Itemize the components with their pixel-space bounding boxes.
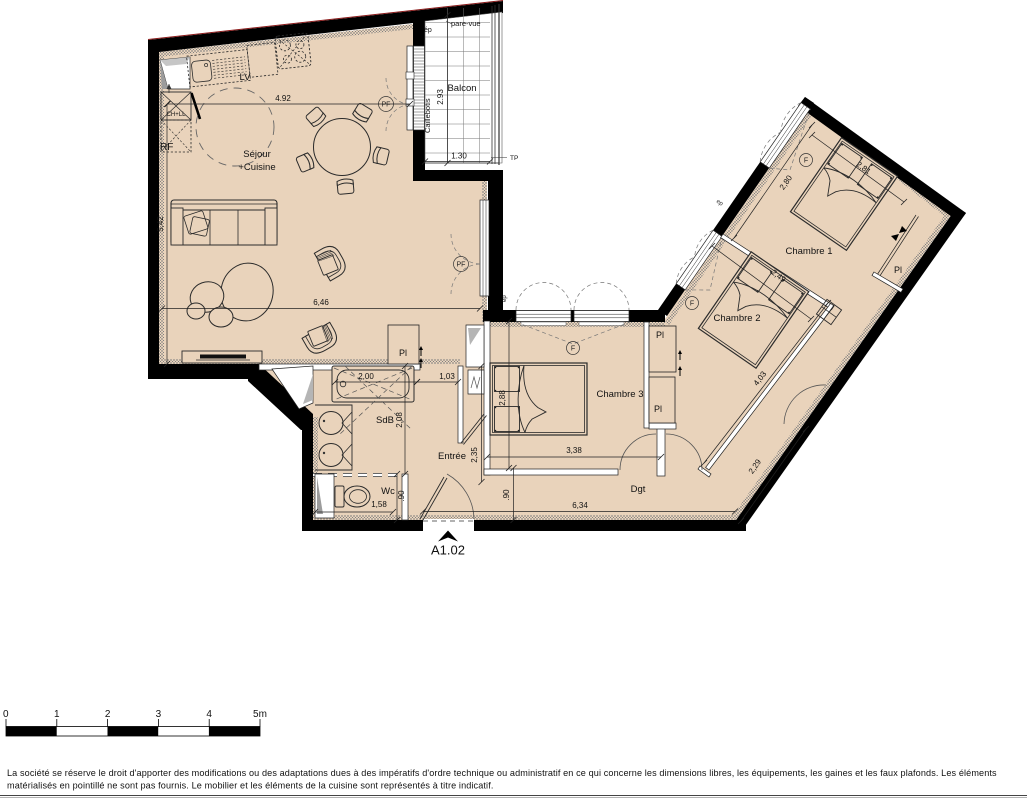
svg-text:3,38: 3,38 (566, 446, 582, 455)
svg-text:PF: PF (382, 102, 391, 109)
svg-text:PF: PF (457, 262, 466, 269)
svg-text:+Cuisine: +Cuisine (238, 162, 275, 173)
svg-text:.90: .90 (397, 490, 406, 502)
svg-text:2,08: 2,08 (395, 412, 404, 428)
svg-text:Entrée: Entrée (438, 451, 466, 462)
svg-text:2,88: 2,88 (498, 390, 507, 406)
svg-text:F: F (804, 158, 808, 165)
svg-text:ep: ep (502, 295, 508, 302)
svg-text:Wc: Wc (381, 486, 395, 497)
svg-text:2,00: 2,00 (358, 372, 374, 381)
svg-text:F: F (690, 301, 694, 308)
svg-text:SdB: SdB (376, 415, 394, 426)
svg-text:Dgt: Dgt (631, 484, 646, 495)
svg-text:CH+LL: CH+LL (167, 112, 187, 118)
svg-text:LV: LV (240, 72, 252, 83)
svg-text:Chambre 3: Chambre 3 (597, 389, 644, 400)
svg-text:La société se réserve le droit: La société se réserve le droit d'apporte… (7, 768, 997, 778)
svg-text:3: 3 (156, 709, 162, 720)
svg-text:ép: ép (424, 27, 432, 34)
svg-text:Balcon: Balcon (447, 83, 476, 94)
svg-text:F: F (571, 346, 575, 353)
svg-text:1,58: 1,58 (371, 500, 387, 509)
svg-text:matérialisés en pointillé ne s: matérialisés en pointillé ne sont pas fo… (7, 781, 494, 791)
svg-text:4: 4 (206, 709, 212, 720)
svg-text:Séjour: Séjour (243, 149, 270, 160)
svg-text:2.93: 2.93 (436, 89, 445, 105)
svg-text:4.92: 4.92 (275, 94, 291, 103)
svg-text:Pl: Pl (654, 404, 662, 414)
svg-text:6,46: 6,46 (313, 298, 329, 307)
svg-text:1: 1 (54, 709, 60, 720)
svg-text:pare-vue: pare-vue (451, 19, 481, 28)
svg-text:2,35: 2,35 (470, 447, 479, 463)
svg-text:Pl: Pl (894, 265, 902, 275)
svg-text:Pl: Pl (399, 348, 407, 358)
svg-text:0: 0 (3, 709, 9, 720)
svg-text:6,34: 6,34 (572, 501, 588, 510)
svg-text:TP: TP (510, 155, 518, 162)
svg-text:5,42: 5,42 (156, 216, 165, 232)
svg-text:Chambre 2: Chambre 2 (714, 313, 761, 324)
svg-text:5m: 5m (253, 709, 267, 720)
svg-text:A1.02: A1.02 (431, 543, 465, 558)
svg-text:Chambre 1: Chambre 1 (786, 246, 833, 257)
svg-text:Caillebotis: Caillebotis (423, 98, 432, 133)
svg-text:1,03: 1,03 (439, 372, 455, 381)
svg-text:Pl: Pl (656, 330, 664, 340)
svg-text:.90: .90 (502, 489, 511, 501)
svg-text:1.30: 1.30 (451, 152, 467, 161)
svg-text:2: 2 (105, 709, 111, 720)
